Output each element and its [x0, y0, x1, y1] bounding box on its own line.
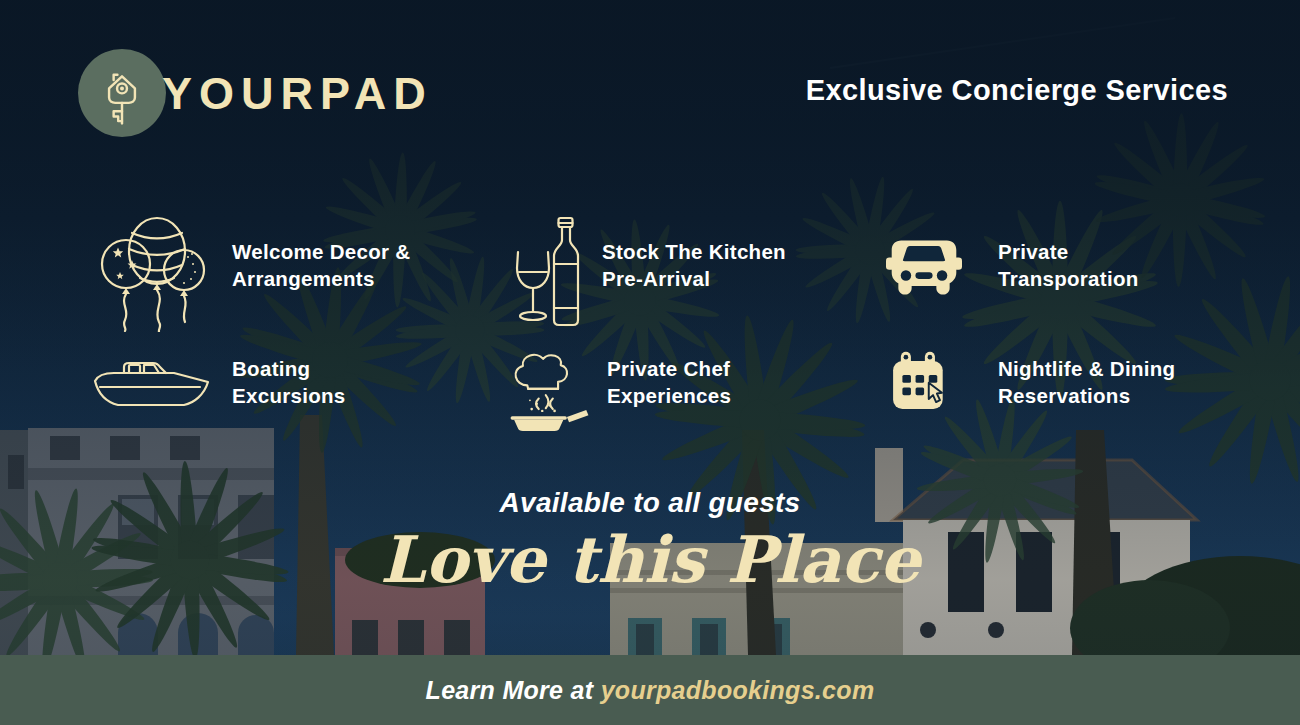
service-label: Private Chef Experiences: [607, 355, 731, 409]
headline: Exclusive Concierge Services: [806, 74, 1228, 107]
tagline: Available to all guests: [0, 487, 1300, 519]
service-label: Boating Excursions: [232, 355, 346, 409]
service-line: Nightlife & Dining: [998, 355, 1175, 382]
service-line: Welcome Decor &: [232, 238, 410, 265]
promo-poster: YOURPAD Exclusive Concierge Services Wel…: [0, 0, 1300, 725]
service-label: Stock The Kitchen Pre-Arrival: [602, 238, 786, 292]
logo: [78, 49, 166, 137]
service-line: Private: [998, 238, 1139, 265]
service-line: Private Chef: [607, 355, 731, 382]
service-line: Reservations: [998, 382, 1175, 409]
service-line: Excursions: [232, 382, 346, 409]
car-icon: [886, 229, 962, 305]
wine-bottle-glass-icon: [503, 210, 595, 342]
boat-icon: [90, 357, 216, 415]
service-line: Transporation: [998, 265, 1139, 292]
balloons-icon: [96, 207, 208, 332]
service-label: Welcome Decor & Arrangements: [232, 238, 410, 292]
service-line: Arrangements: [232, 265, 410, 292]
service-line: Stock The Kitchen: [602, 238, 786, 265]
footer-learn-more-text: Learn More at: [426, 676, 601, 705]
footer-website-url: yourpadbookings.com: [601, 676, 875, 705]
service-label: Nightlife & Dining Reservations: [998, 355, 1175, 409]
service-line: Pre-Arrival: [602, 265, 786, 292]
service-line: Boating: [232, 355, 346, 382]
brand-name: YOURPAD: [162, 68, 433, 120]
chef-hat-pan-icon: [498, 344, 590, 432]
key-house-icon: [84, 53, 160, 133]
footer-bar: Learn More at yourpadbookings.com: [0, 655, 1300, 725]
service-label: Private Transporation: [998, 238, 1139, 292]
service-line: Experiences: [607, 382, 731, 409]
script-tagline: Love this Place: [0, 522, 1300, 597]
calendar-cursor-icon: [890, 350, 952, 417]
